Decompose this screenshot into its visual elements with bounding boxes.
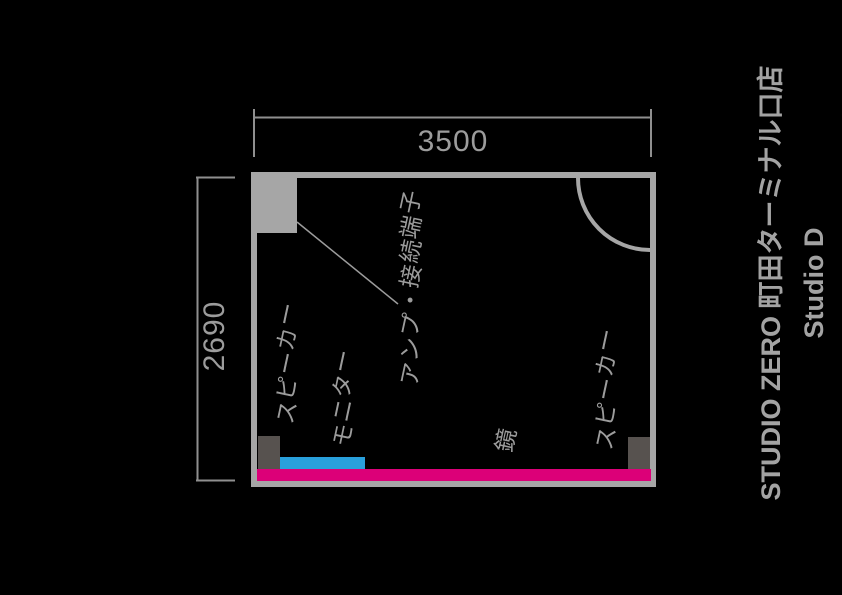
monitor-bar (278, 457, 365, 469)
label-monitor: ータニモ (330, 349, 356, 447)
label-amp-terminal: 子端続接・プンア (398, 190, 424, 386)
studio-title-block: STUDIO ZERO 町田ターミナル口店 Studio D (750, 53, 836, 513)
mirror-bar (257, 469, 651, 481)
studio-title: STUDIO ZERO 町田ターミナル口店 (750, 53, 793, 513)
label-speaker-right: ーカーピス (593, 328, 619, 451)
floorplan-canvas: 3500 2690 ーカーピス ータニモ 子端続接・プンア 鏡 ーカーピス ST… (0, 0, 842, 595)
speaker-box-left (258, 436, 280, 469)
label-speaker-left: ーカーピス (274, 302, 300, 425)
height-dimension-label: 2690 (198, 276, 228, 396)
label-mirror: 鏡 (493, 428, 519, 453)
studio-room-name: Studio D (793, 53, 836, 513)
amp-terminal-box (252, 172, 297, 233)
speaker-box-right (628, 437, 650, 469)
width-dimension-label: 3500 (393, 125, 513, 159)
